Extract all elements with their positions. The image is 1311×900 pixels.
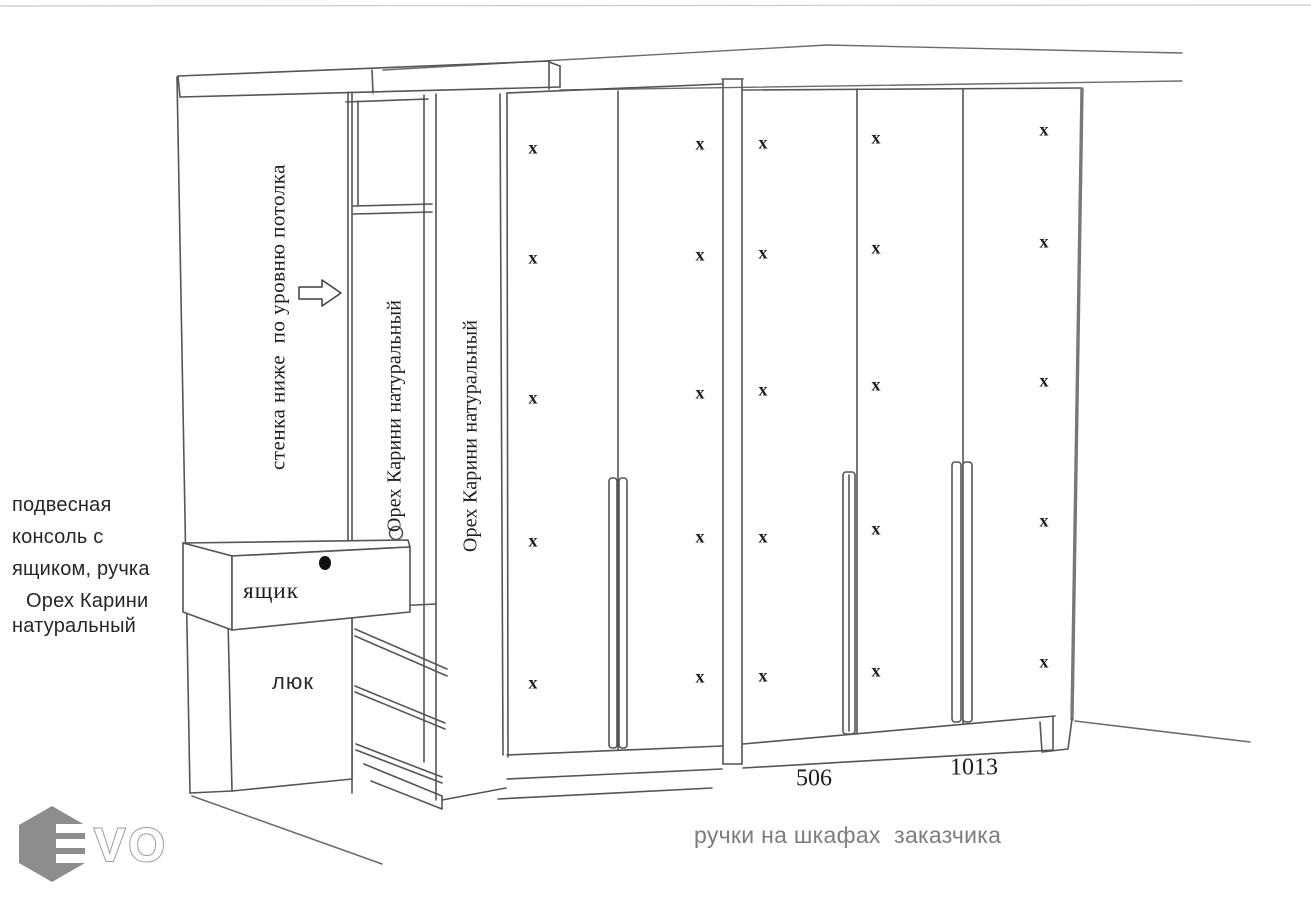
ceiling-line-upper [383,45,1182,70]
floor-line-left [192,796,382,864]
hinge-mark: x [759,527,768,548]
hinge-mark: x [696,527,705,548]
hinge-mark: x [696,134,705,155]
hinge-mark: x [529,388,538,409]
right-plinth-corner [1040,719,1250,752]
logo-e-bars [56,824,88,863]
hinge-mark: x [529,138,538,159]
hinge-mark: x [872,519,881,540]
hinge-mark: x [1040,371,1049,392]
hinge-mark: x [872,238,881,259]
scan-border-line [0,5,1311,6]
handle-left-pair-b [619,478,627,748]
hinge-mark: x [759,380,768,401]
open-shelves [355,629,506,809]
console-note-line: натуральный [12,615,150,638]
hinge-mark: x [529,248,538,269]
hinge-mark: x [759,133,768,154]
hinge-mark: x [1040,652,1049,673]
dimension-506: 506 [796,766,832,793]
hatch-panel [228,606,352,791]
wall-height-note: стенка ниже по уровню потолка [266,164,291,470]
hatch-label: люк [272,669,314,695]
console-note-line: подвесная [12,494,150,517]
handle-right-pair-a [952,462,961,722]
hinge-mark: x [529,673,538,694]
evo-logo: VO [19,806,168,882]
furniture-drawing-sheet: VO стенка ниже по уровню потолка Орех Ка… [0,0,1311,900]
arrow-right-icon [299,280,341,306]
console-note: подвесная консоль с ящиком, ручка Орех К… [12,494,150,640]
console-note-line: Орех Карини [12,590,150,613]
hinge-mark: x [759,666,768,687]
hinge-mark: x [696,383,705,404]
exposed-side-panel [500,93,508,757]
top-fascia-board [178,61,560,97]
center-divider [722,79,743,764]
handle-right-pair-b [963,462,972,722]
hinge-mark: x [1040,232,1049,253]
door-section-right [743,88,1082,768]
hinge-mark: x [1040,511,1049,532]
hinge-mark: x [872,375,881,396]
dimension-1013: 1013 [950,755,998,782]
hinge-mark: x [759,243,768,264]
hinge-mark: x [872,128,881,149]
hinge-mark: x [696,245,705,266]
wardrobe-elevation-drawing: VO [0,0,1311,900]
logo-vo-text: VO [94,818,168,871]
material-note-1: Орех Карини натуральный [384,300,407,532]
door-handles [609,462,972,748]
console-note-line: консоль с [12,526,150,549]
drawer-label: ящик [243,578,299,604]
right-side-edge [1072,89,1082,719]
hinge-mark: x [872,661,881,682]
handles-note: ручки на шкафах заказчика [694,822,1001,849]
hinge-mark: x [1040,120,1049,141]
handle-left-pair-a [609,478,617,748]
drawer-knob [319,556,331,570]
hinge-mark: x [696,667,705,688]
hinge-mark: x [529,531,538,552]
console-note-line: ящиком, ручка [12,558,150,581]
material-note-2: Орех Карини натуральный [460,320,483,552]
